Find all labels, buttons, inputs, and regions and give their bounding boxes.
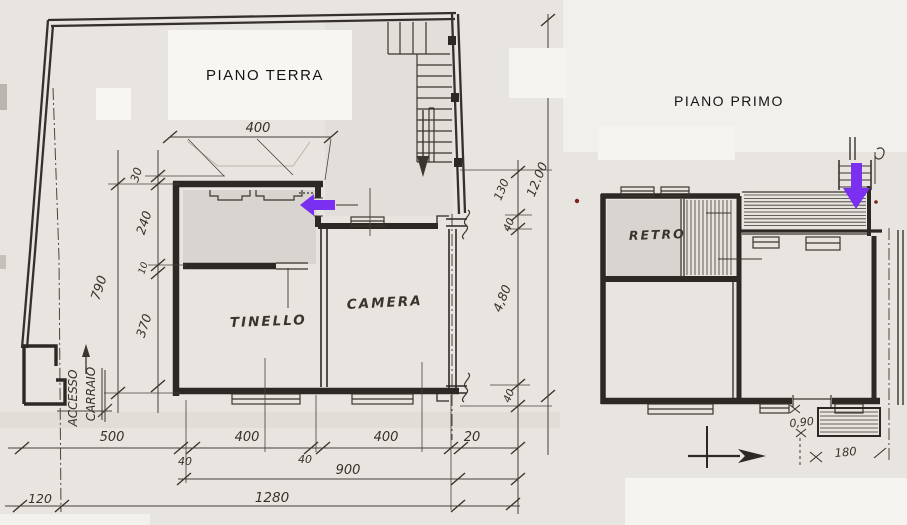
scanned-floor-plan-sheet: PIANO TERRA PIANO PRIMO TINELLO CAMERA R… xyxy=(0,0,907,525)
red-mark-dot xyxy=(874,200,878,204)
dim-wall-40a: 40 xyxy=(178,455,192,468)
scan-artifact xyxy=(0,84,7,110)
access-label-line1: ACCESSO xyxy=(66,370,80,428)
access-label-line2: CARRAIO xyxy=(84,367,98,421)
dim-bottom-400a: 400 xyxy=(235,430,260,445)
dim-bottom-500: 500 xyxy=(100,430,125,445)
piano-primo-title: PIANO PRIMO xyxy=(674,93,784,109)
red-mark-dot xyxy=(575,199,579,203)
scan-artifact xyxy=(0,255,6,269)
dim-balcony-180: 180 xyxy=(834,444,857,460)
dim-door-090: 0,90 xyxy=(789,415,815,430)
room-label-retro: RETRO xyxy=(629,226,686,243)
dim-bottom-900: 900 xyxy=(336,463,361,478)
dim-bottom-20: 20 xyxy=(464,430,481,445)
dim-wall-40b: 40 xyxy=(298,453,312,466)
dim-top-width: 400 xyxy=(246,121,271,136)
piano-terra-title: PIANO TERRA xyxy=(206,67,324,84)
dim-bottom-400b: 400 xyxy=(374,430,399,445)
dim-bottom-1280: 1280 xyxy=(255,490,289,506)
room-label-tinello: TINELLO xyxy=(230,312,307,331)
dim-bottom-120: 120 xyxy=(28,491,52,506)
